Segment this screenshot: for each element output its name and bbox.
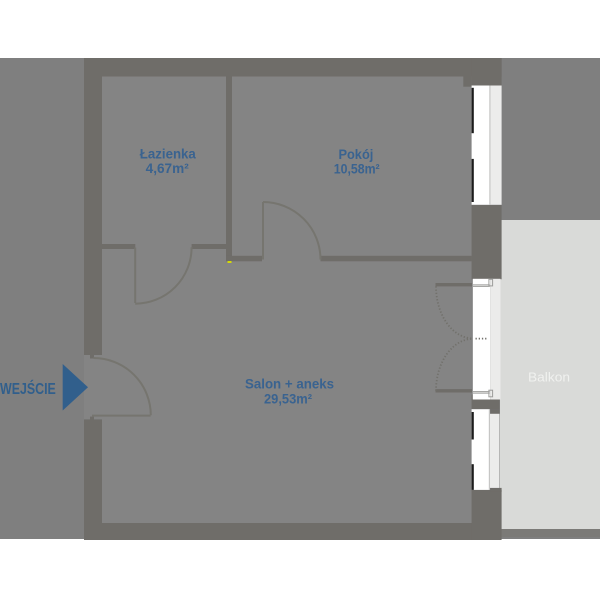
- svg-text:Salon + aneks: Salon + aneks: [245, 377, 334, 392]
- svg-text:29,53m²: 29,53m²: [264, 392, 312, 407]
- svg-text:Pokój: Pokój: [338, 147, 373, 162]
- svg-text:4,67m²: 4,67m²: [146, 161, 190, 176]
- svg-text:Łazienka: Łazienka: [140, 146, 196, 161]
- svg-text:WEJŚCIE: WEJŚCIE: [0, 380, 56, 398]
- svg-text:Balkon: Balkon: [528, 369, 570, 384]
- svg-text:10,58m²: 10,58m²: [334, 162, 380, 177]
